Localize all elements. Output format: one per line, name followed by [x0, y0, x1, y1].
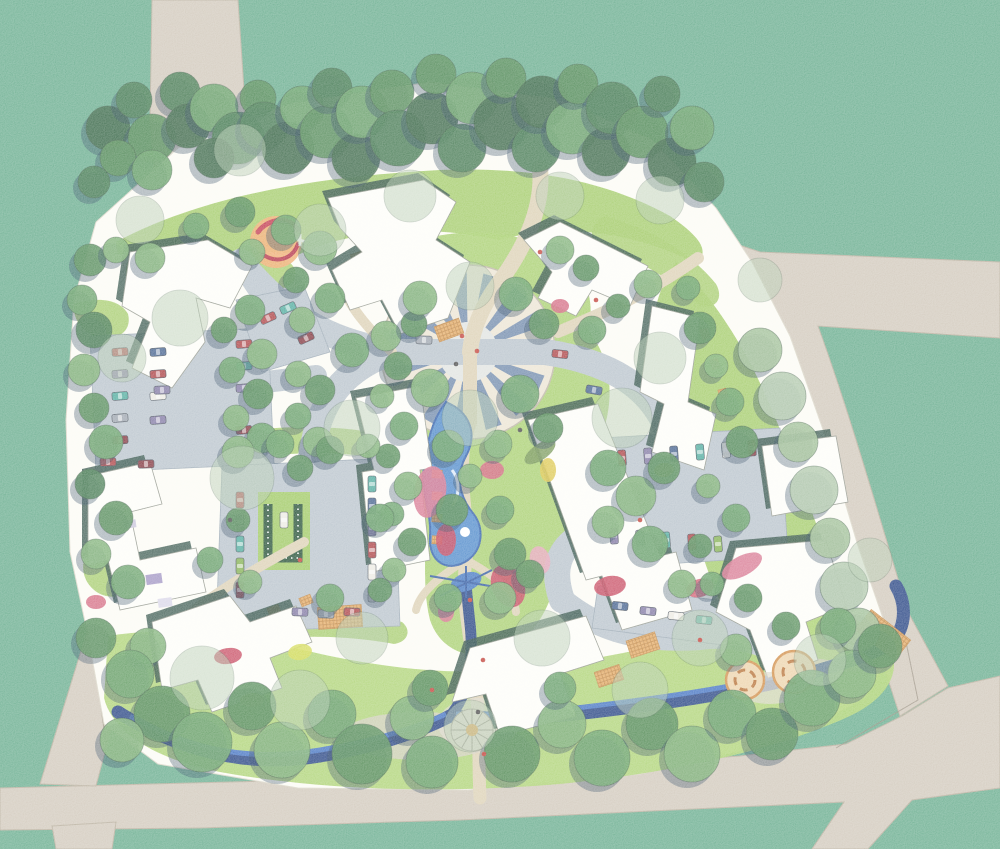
site-plan-map: [0, 0, 1000, 849]
paper-grain: [0, 0, 1000, 849]
grain-texture: [0, 0, 1000, 849]
site-plan-canvas: [0, 0, 1000, 849]
